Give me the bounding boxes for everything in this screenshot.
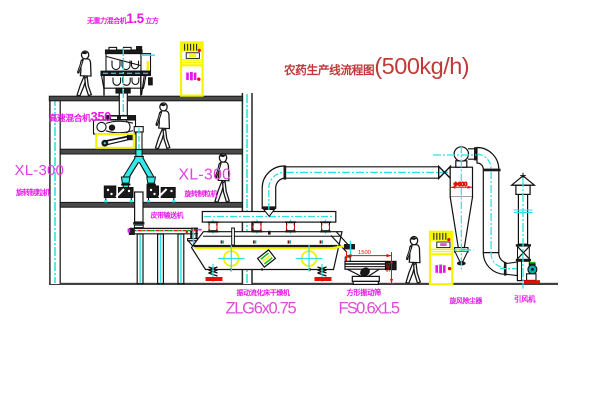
svg-text:方形振动筛: 方形振动筛 [347, 288, 382, 297]
svg-text:旋转制粒机: 旋转制粒机 [184, 189, 218, 198]
svg-text:XL-300: XL-300 [179, 167, 232, 184]
svg-text:545: 545 [386, 263, 392, 272]
svg-text:Φ600: Φ600 [454, 182, 468, 188]
svg-text:振动流化床干燥机: 振动流化床干燥机 [237, 288, 291, 297]
svg-text:XL-300: XL-300 [15, 162, 65, 179]
svg-text:1500: 1500 [358, 250, 371, 256]
svg-text:FS0.6x1.5: FS0.6x1.5 [339, 300, 400, 318]
svg-text:引风机: 引风机 [514, 295, 536, 304]
svg-text:旋风除尘器: 旋风除尘器 [449, 296, 483, 305]
svg-text:皮带输送机: 皮带输送机 [150, 211, 184, 220]
svg-text:ZLG6x0.75: ZLG6x0.75 [226, 300, 297, 318]
svg-text:旋转制粒机: 旋转制粒机 [15, 188, 51, 197]
